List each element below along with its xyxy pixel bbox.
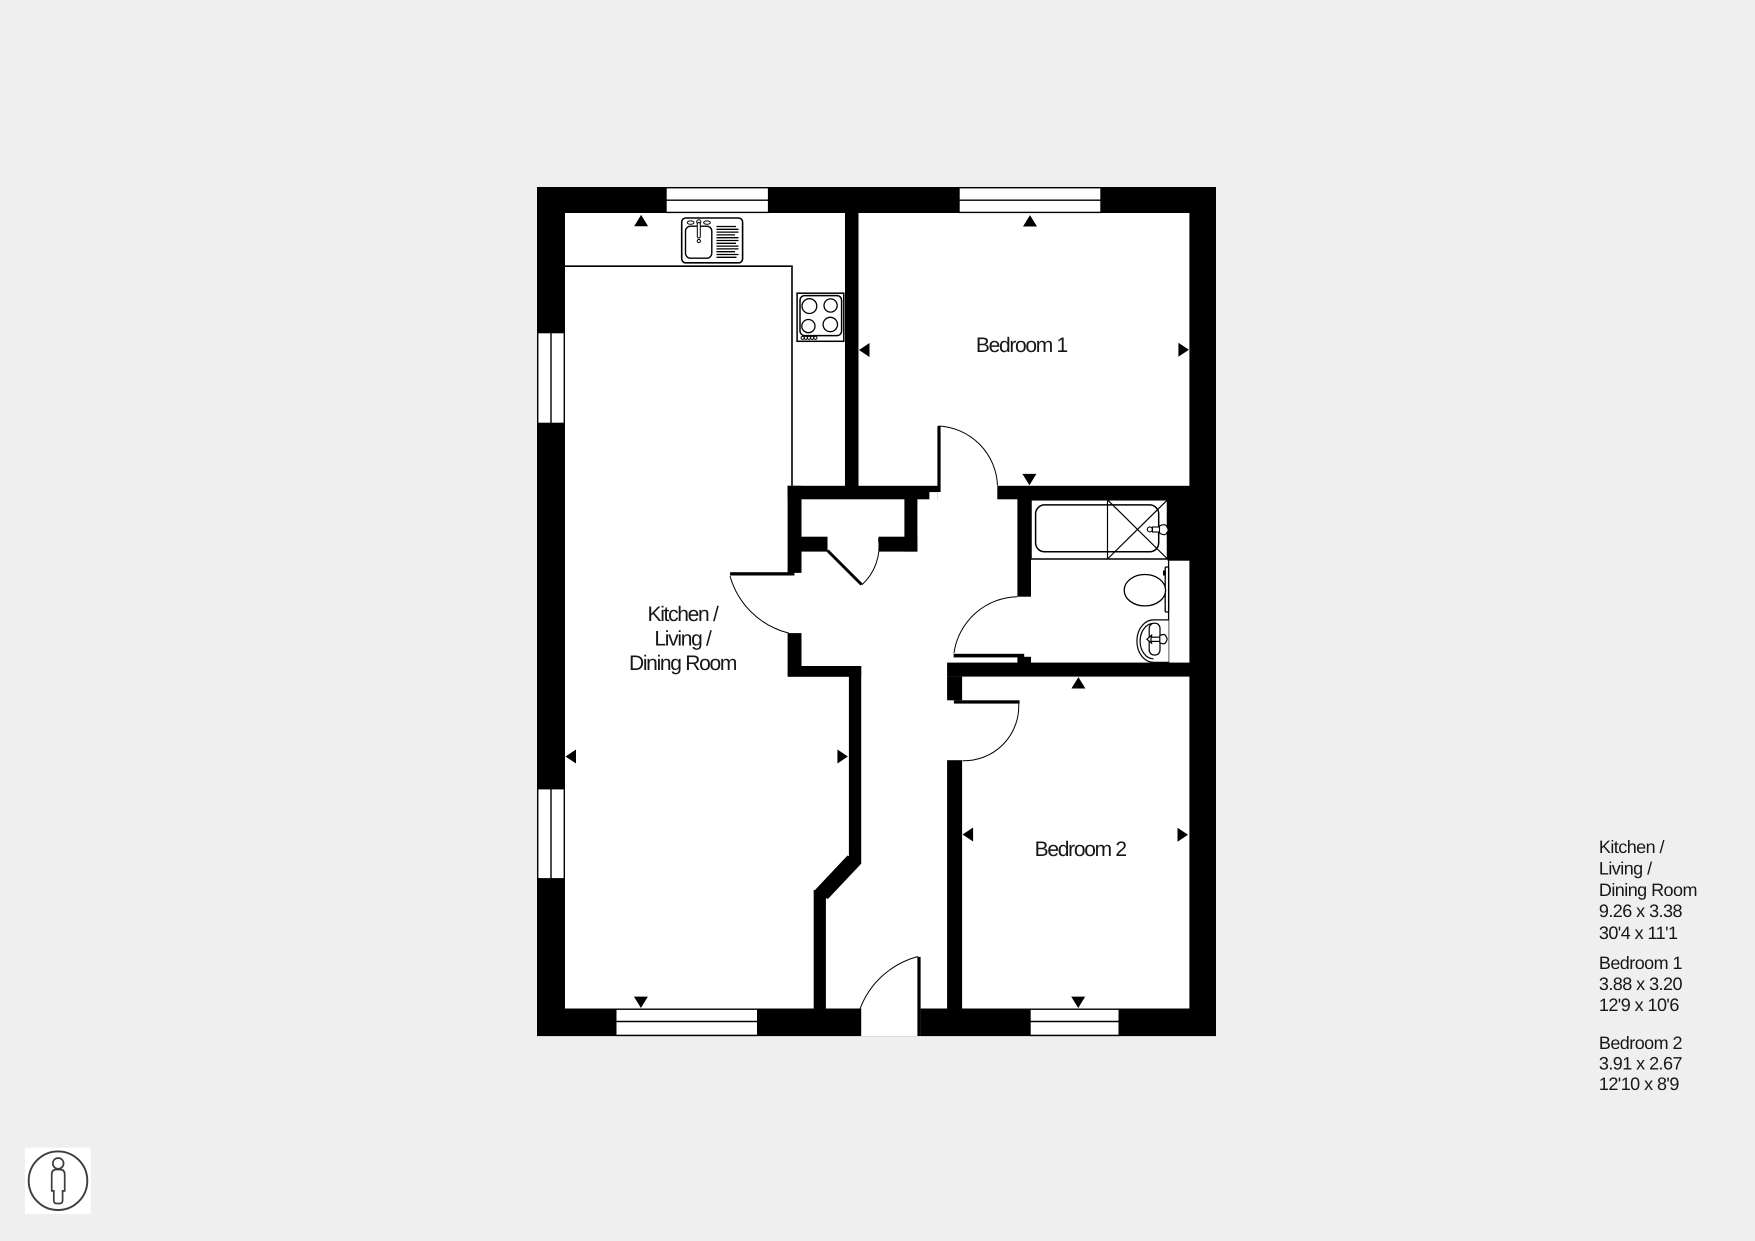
svg-text:30'4 x 11'1: 30'4 x 11'1: [1599, 923, 1678, 943]
svg-text:9.26 x 3.38: 9.26 x 3.38: [1599, 901, 1683, 921]
svg-text:Bedroom 1: Bedroom 1: [976, 334, 1068, 357]
svg-text:12'10 x 8'9: 12'10 x 8'9: [1599, 1074, 1679, 1094]
svg-text:3.88 x 3.20: 3.88 x 3.20: [1599, 974, 1683, 994]
svg-text:Kitchen /: Kitchen /: [647, 603, 718, 626]
svg-text:Living /: Living /: [654, 628, 712, 651]
svg-text:Bedroom 1: Bedroom 1: [1599, 953, 1683, 973]
svg-text:Kitchen /: Kitchen /: [1599, 837, 1665, 857]
svg-text:Bedroom 2: Bedroom 2: [1035, 838, 1127, 861]
svg-text:12'9 x 10'6: 12'9 x 10'6: [1599, 995, 1679, 1015]
svg-text:Dining Room: Dining Room: [629, 652, 737, 675]
svg-text:3.91 x 2.67: 3.91 x 2.67: [1599, 1053, 1683, 1073]
svg-text:Dining Room: Dining Room: [1599, 880, 1697, 900]
svg-text:Living /: Living /: [1599, 859, 1652, 879]
svg-text:Bedroom 2: Bedroom 2: [1599, 1033, 1683, 1053]
